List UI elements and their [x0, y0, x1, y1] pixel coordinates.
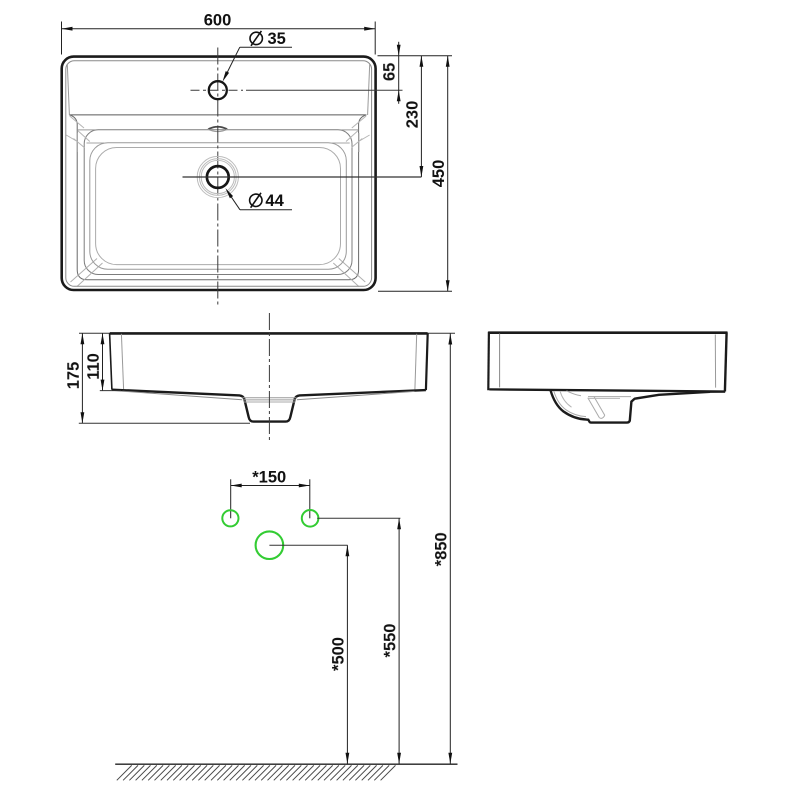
svg-text:175: 175: [65, 362, 83, 390]
svg-text:*500: *500: [330, 637, 348, 671]
svg-text:*150: *150: [252, 469, 286, 487]
svg-text:450: 450: [430, 160, 448, 188]
svg-text:600: 600: [204, 11, 232, 29]
svg-text:*550: *550: [381, 624, 399, 658]
svg-text:44: 44: [265, 192, 284, 210]
svg-text:110: 110: [85, 353, 103, 380]
svg-text:35: 35: [268, 30, 286, 48]
svg-text:*850: *850: [433, 532, 451, 566]
svg-text:65: 65: [381, 63, 399, 81]
svg-text:230: 230: [404, 101, 422, 129]
